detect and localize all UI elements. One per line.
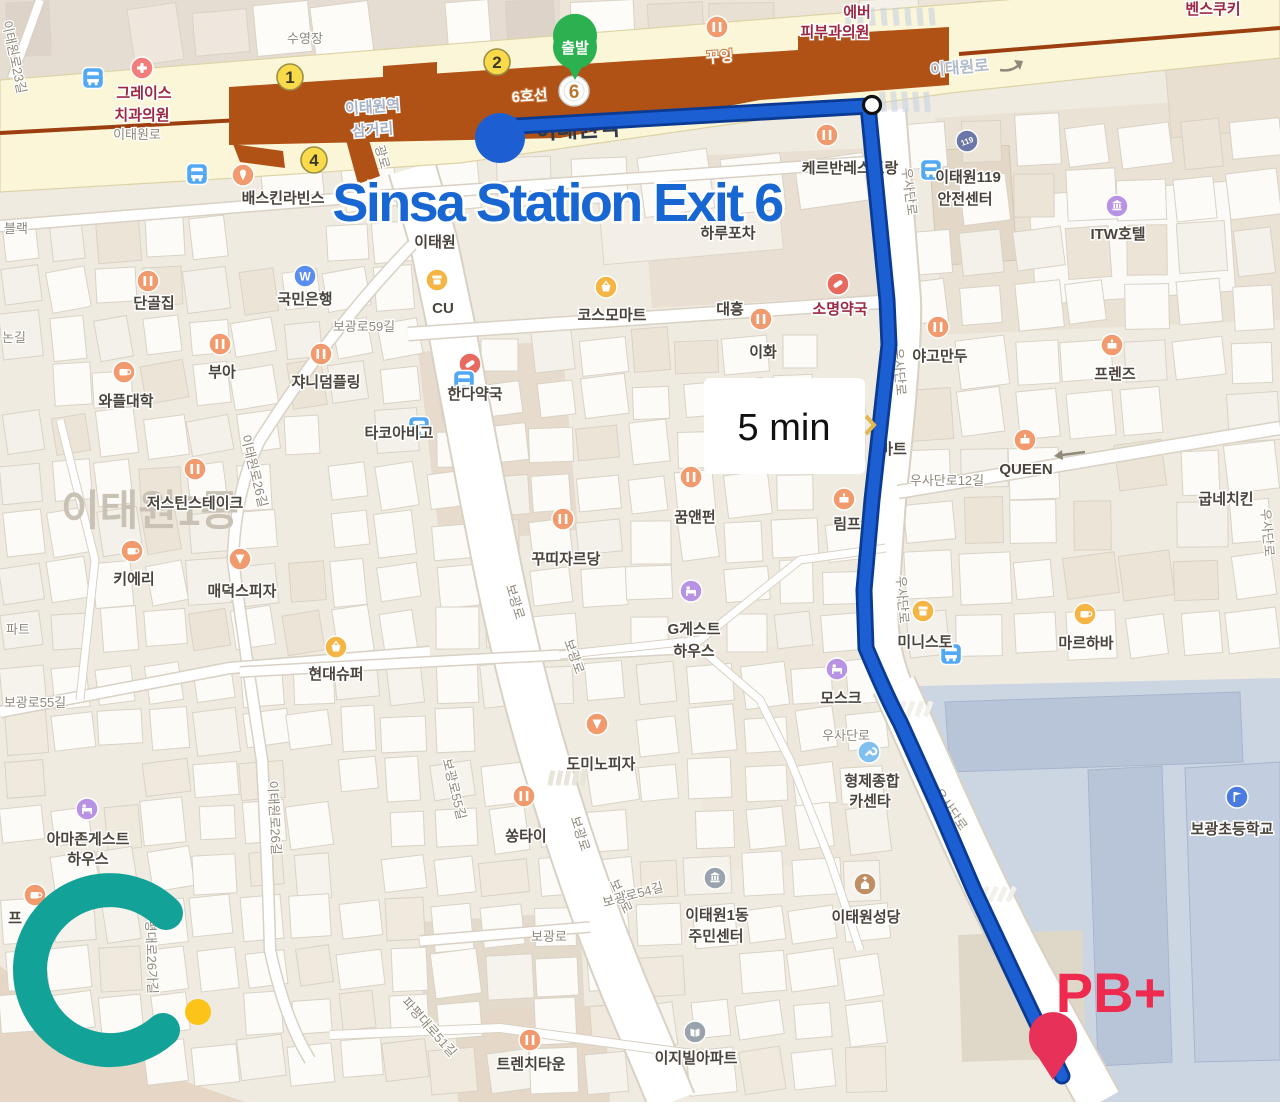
svg-text:PB+: PB+	[1056, 961, 1167, 1024]
svg-text:꾸잉: 꾸잉	[705, 47, 734, 67]
svg-text:보광로55길: 보광로55길	[4, 695, 66, 710]
svg-text:CU: CU	[432, 300, 454, 317]
svg-text:현대슈퍼: 현대슈퍼	[308, 666, 363, 683]
svg-text:단골집: 단골집	[133, 294, 174, 312]
svg-text:피부과의원: 피부과의원	[800, 23, 869, 41]
svg-text:국민은행: 국민은행	[277, 291, 332, 308]
svg-text:도미노피자: 도미노피자	[566, 756, 635, 773]
svg-text:야고만두: 야고만두	[912, 348, 967, 365]
svg-text:안전센터: 안전센터	[937, 190, 992, 208]
svg-text:코스모마트: 코스모마트	[577, 307, 646, 324]
svg-text:이태원로: 이태원로	[113, 127, 161, 142]
svg-text:이태원성당: 이태원성당	[831, 908, 900, 926]
svg-text:우사단로: 우사단로	[822, 728, 870, 743]
svg-text:QUEEN: QUEEN	[999, 461, 1052, 478]
svg-text:트렌치타운: 트렌치타운	[496, 1056, 565, 1073]
svg-text:2: 2	[492, 53, 501, 72]
svg-text:케르반레스토랑: 케르반레스토랑	[802, 159, 899, 177]
svg-text:타코아비고: 타코아비고	[364, 425, 433, 442]
svg-text:이태원: 이태원	[414, 234, 455, 251]
svg-text:에버: 에버	[843, 4, 871, 21]
svg-text:배스킨라빈스: 배스킨라빈스	[242, 189, 325, 207]
svg-text:꾸띠자르당: 꾸띠자르당	[531, 550, 600, 568]
svg-text:매덕스피자: 매덕스피자	[207, 582, 276, 600]
svg-text:G게스트: G게스트	[667, 621, 720, 638]
svg-text:저스틴스테이크: 저스틴스테이크	[147, 495, 244, 512]
svg-text:1: 1	[285, 68, 294, 87]
svg-text:치과의원: 치과의원	[114, 106, 169, 124]
svg-text:소명약국: 소명약국	[812, 300, 867, 318]
svg-text:6: 6	[569, 82, 580, 103]
svg-text:이태원1동: 이태원1동	[685, 907, 749, 924]
svg-text:한다약국: 한다약국	[447, 385, 502, 403]
svg-text:삼거리: 삼거리	[351, 121, 393, 141]
svg-text:수영장: 수영장	[287, 31, 323, 46]
svg-text:논길: 논길	[2, 330, 26, 345]
svg-text:보광로59길: 보광로59길	[333, 319, 395, 334]
svg-text:형제종합: 형제종합	[844, 773, 899, 790]
svg-text:W: W	[299, 270, 311, 284]
svg-text:림프: 림프	[833, 515, 861, 533]
svg-text:평대로26가길: 평대로26가길	[143, 919, 161, 994]
svg-text:쟈니덤플링: 쟈니덤플링	[291, 373, 360, 391]
svg-text:미니스토: 미니스토	[897, 634, 952, 651]
svg-text:꿈앤펀: 꿈앤펀	[674, 509, 715, 526]
svg-text:하우스: 하우스	[67, 851, 109, 868]
svg-text:보광초등학교: 보광초등학교	[1191, 820, 1274, 838]
svg-text:하우스: 하우스	[673, 643, 715, 660]
svg-text:5 min: 5 min	[738, 407, 831, 449]
svg-text:주민센터: 주민센터	[688, 928, 743, 945]
svg-text:굽네치킨: 굽네치킨	[1198, 490, 1253, 508]
svg-text:아마존게스트: 아마존게스트	[47, 831, 130, 848]
svg-text:블랙: 블랙	[4, 221, 28, 236]
svg-text:쏭타이: 쏭타이	[505, 828, 546, 845]
svg-text:모스크: 모스크	[820, 690, 862, 707]
svg-text:이태원119: 이태원119	[935, 169, 1001, 186]
svg-text:Sinsa Station Exit 6: Sinsa Station Exit 6	[332, 173, 783, 233]
svg-text:프렌즈: 프렌즈	[1094, 366, 1136, 383]
svg-text:부아: 부아	[208, 364, 236, 381]
svg-text:프: 프	[8, 910, 22, 927]
svg-text:출발: 출발	[561, 40, 589, 57]
svg-text:ITW호텔: ITW호텔	[1090, 225, 1145, 243]
svg-text:대흥: 대흥	[716, 300, 744, 318]
svg-text:와플대학: 와플대학	[98, 392, 153, 410]
svg-text:4: 4	[309, 151, 319, 170]
svg-text:우사단로12길: 우사단로12길	[910, 473, 984, 488]
svg-text:마르하바: 마르하바	[1058, 634, 1113, 652]
svg-text:보광로: 보광로	[531, 929, 567, 944]
svg-text:벤스쿠키: 벤스쿠키	[1185, 1, 1240, 18]
svg-text:키에리: 키에리	[113, 571, 154, 588]
svg-text:6호선: 6호선	[511, 87, 548, 106]
svg-text:카센타: 카센타	[849, 793, 891, 810]
svg-text:파트: 파트	[6, 622, 30, 637]
svg-text:이화: 이화	[749, 344, 777, 361]
svg-text:이지빌아파트: 이지빌아파트	[655, 1050, 738, 1067]
svg-text:그레이스: 그레이스	[116, 85, 171, 102]
